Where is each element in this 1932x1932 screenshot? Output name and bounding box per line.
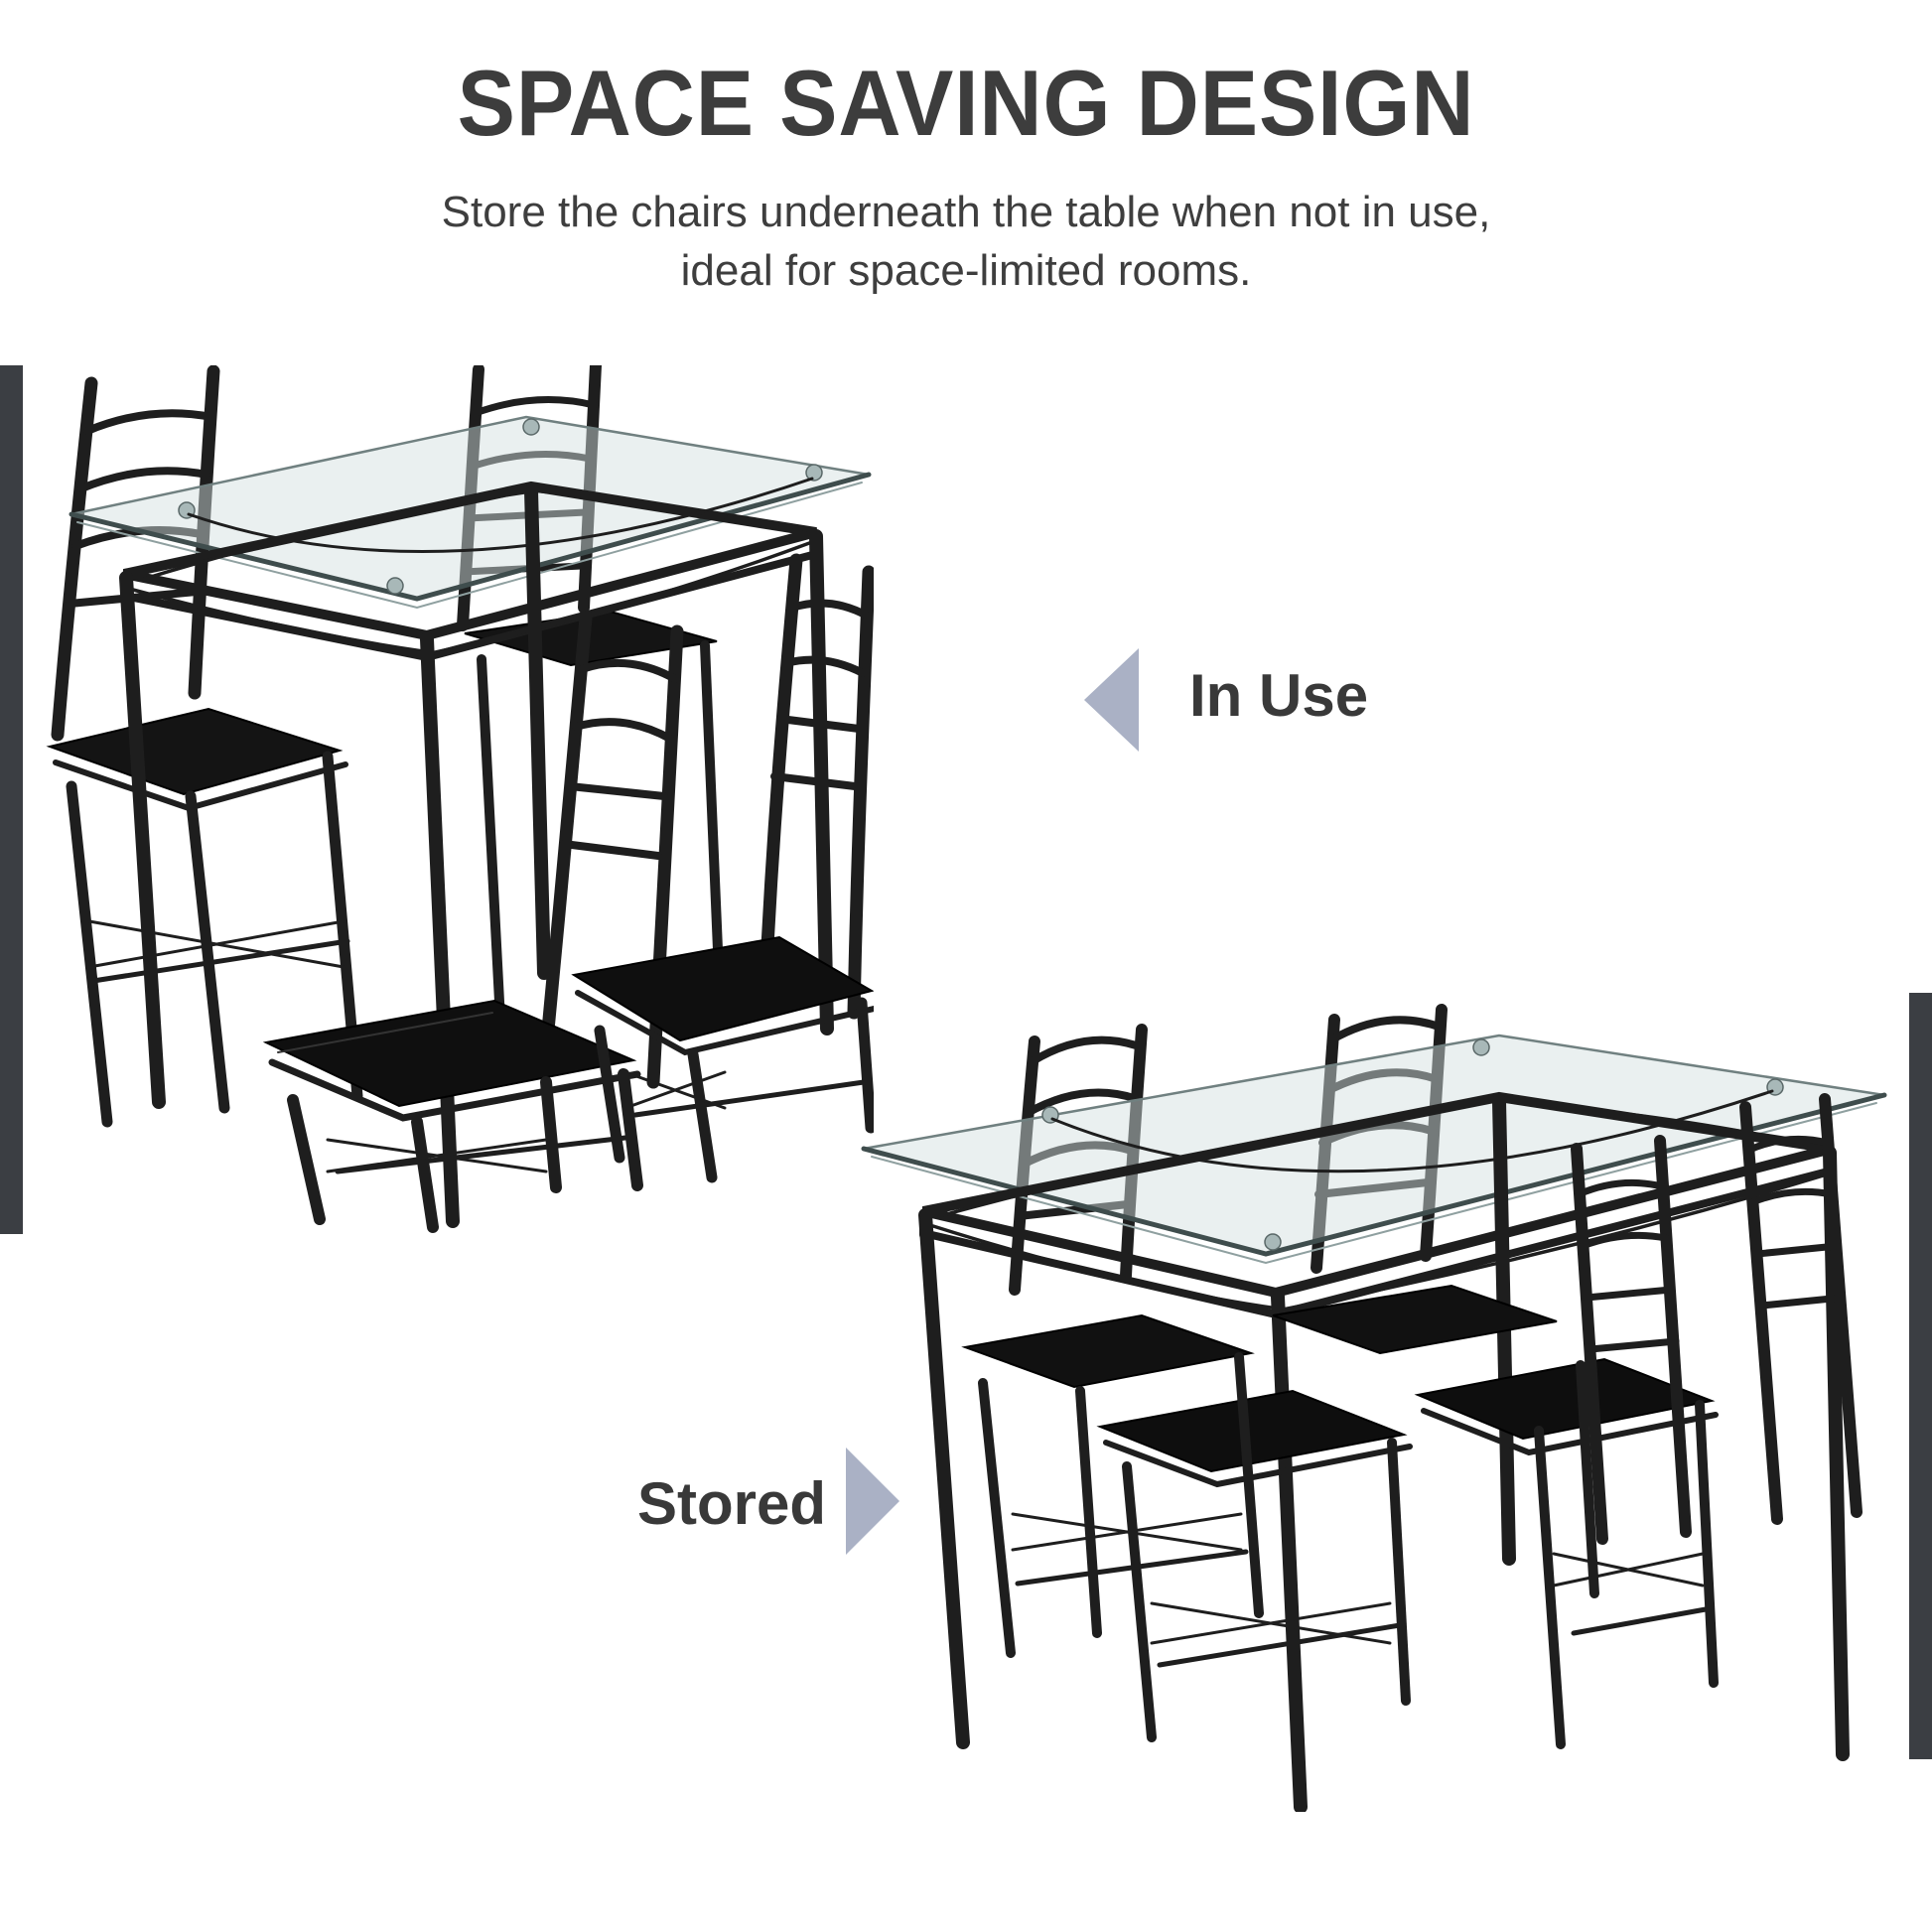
subtitle-line-2: ideal for space-limited rooms. bbox=[0, 241, 1932, 300]
page-subtitle: Store the chairs underneath the table wh… bbox=[0, 183, 1932, 300]
left-edge-bar bbox=[0, 365, 23, 1234]
dining-set-in-use bbox=[50, 365, 874, 1227]
in-use-arrow-icon bbox=[1084, 648, 1139, 752]
page-title: SPACE SAVING DESIGN bbox=[68, 50, 1864, 157]
dining-set-stored bbox=[864, 1010, 1884, 1807]
stored-label: Stored bbox=[637, 1469, 826, 1538]
in-use-label: In Use bbox=[1189, 661, 1368, 730]
glass-top-table bbox=[864, 1035, 1884, 1807]
in-use-product-photo bbox=[30, 365, 874, 1249]
stored-arrow-icon bbox=[846, 1448, 899, 1555]
subtitle-line-1: Store the chairs underneath the table wh… bbox=[0, 183, 1932, 241]
right-edge-bar bbox=[1909, 993, 1932, 1759]
stored-product-photo bbox=[844, 998, 1906, 1812]
